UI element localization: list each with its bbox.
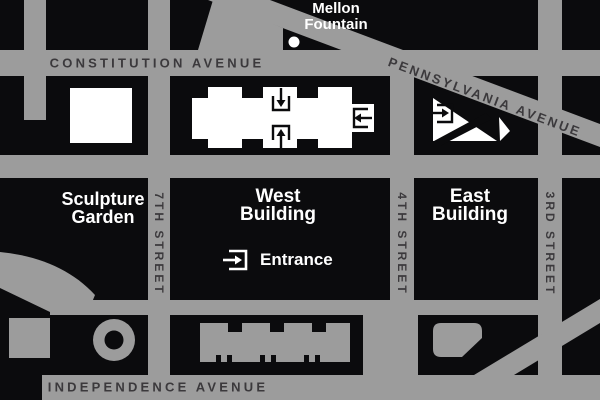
gray-square-building [9,318,50,358]
entrance-label: Entrance [260,250,333,270]
sculpture-garden-label: Sculpture Garden [61,190,144,226]
mellon-fountain-label: Mellon Fountain [304,1,367,33]
mellon-line2: Fountain [304,17,367,33]
sculpture-line1: Sculpture [61,190,144,208]
third-street-label: 3RD STREET [543,192,557,297]
west-line2: Building [240,206,316,224]
third-street-road [538,0,562,375]
sculpture-line2: Garden [61,208,144,226]
fourth-street-south-plaza [363,315,418,375]
east-line2: Building [432,206,508,224]
madison-drive-road [0,155,600,178]
west-building-label: West Building [240,188,316,224]
ninth-street-stub-road [24,0,46,120]
fourth-street-label: 4TH STREET [395,192,409,295]
sculpture-garden-pavilion [70,88,132,143]
west-building-footprint [192,87,374,148]
mellon-line1: Mellon [304,1,367,17]
constitution-avenue-label: CONSTITUTION AVENUE [50,56,265,71]
jefferson-drive-road [50,300,552,315]
seventh-street-label: 7TH STREET [152,192,166,295]
nga-area-map: CONSTITUTION AVENUE INDEPENDENCE AVENUE … [0,0,600,400]
mellon-fountain-dot [289,37,300,48]
east-building-label: East Building [432,188,508,224]
independence-avenue-label: INDEPENDENCE AVENUE [48,380,268,395]
entrance-legend: Entrance [252,250,333,270]
hirshhorn-ring-hole [105,331,124,350]
